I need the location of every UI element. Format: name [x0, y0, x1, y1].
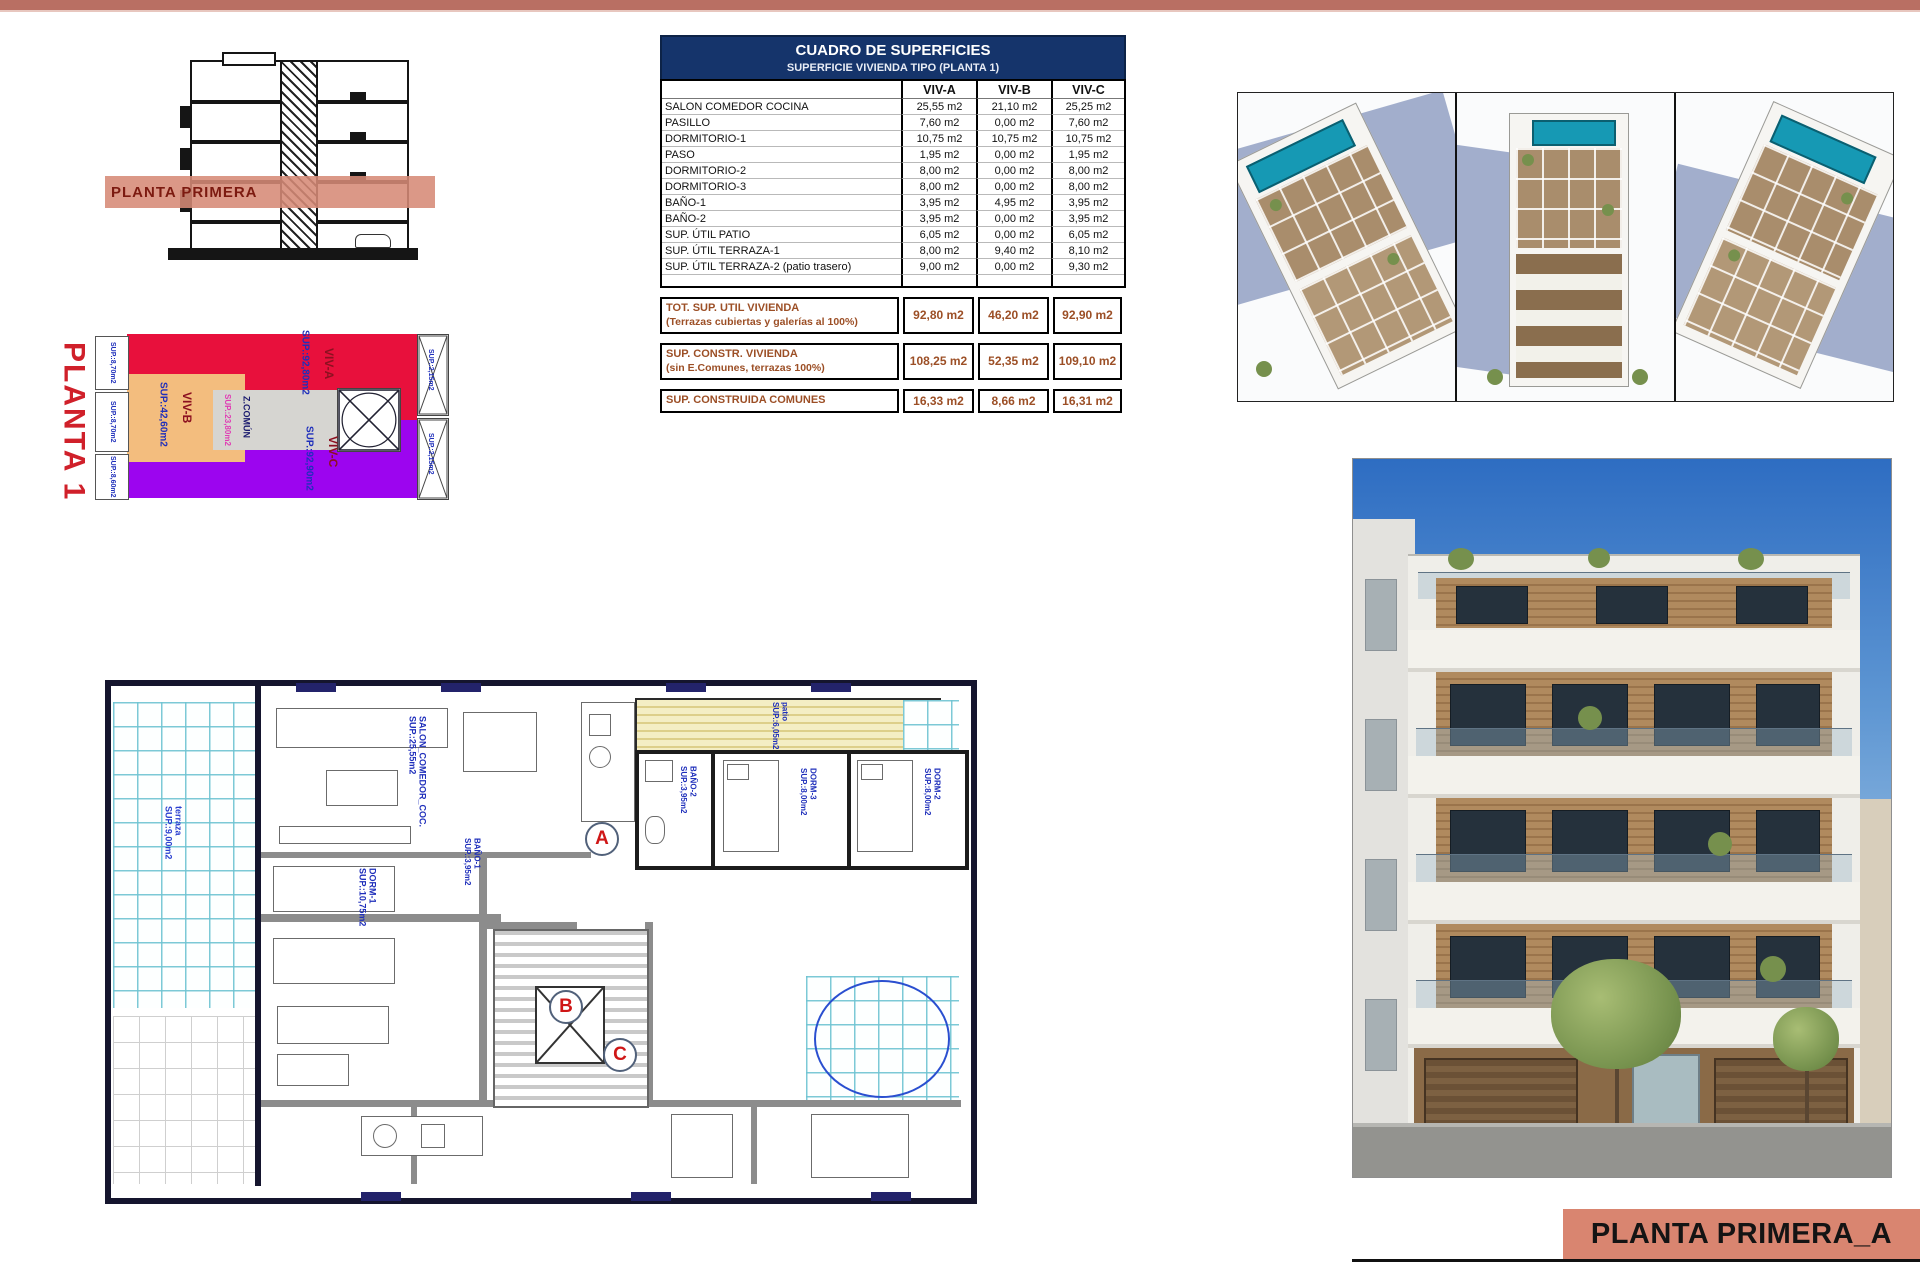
viv-c-sup-label: SUP.:92,90m2 [303, 426, 315, 498]
surface-table-header: CUADRO DE SUPERFICIES SUPERFICIE VIVIEND… [660, 35, 1126, 79]
unit-marker-a: A [585, 822, 619, 856]
bed [811, 1114, 909, 1178]
summary-value: 46,20 m2 [978, 297, 1049, 334]
wardrobe [671, 1114, 733, 1178]
planta-primera-band: PLANTA PRIMERA [105, 176, 435, 208]
window-marker [666, 683, 706, 692]
viv-a-label: VIV-A [321, 348, 335, 408]
viv-c-label: VIV-C [325, 436, 339, 494]
row-value: 8,00 m2 [901, 243, 976, 259]
roof-plant [1738, 548, 1764, 570]
spacer [976, 275, 1051, 286]
sofa [277, 1006, 389, 1044]
plant [1522, 154, 1534, 166]
summary-row-total-util: TOT. SUP. UTIL VIVIENDA (Terrazas cubier… [660, 297, 1126, 334]
summary-label-sub: (Terrazas cubiertas y galerías al 100%) [666, 316, 893, 329]
row-label: SUP. ÚTIL TERRAZA-1 [662, 243, 901, 259]
neighbour-window [1365, 999, 1397, 1071]
balcony-railing [1416, 854, 1852, 883]
table-row: SUP. ÚTIL TERRAZA-2 (patio trasero) 9,00… [662, 259, 1124, 275]
summary-value: 108,25 m2 [903, 343, 974, 380]
balcony-block [180, 106, 192, 128]
title-underline [1352, 1259, 1920, 1262]
terrace-tiled-left [113, 702, 255, 1008]
wall-segment [261, 914, 501, 922]
unit-marker-b: B [549, 990, 583, 1024]
room-label-dorm2: DORM-2SUP.:8,00m2 [923, 768, 941, 848]
terrace-tab-label: SUP.:8,70m2 [108, 342, 116, 384]
row-value: 3,95 m2 [901, 211, 976, 227]
floor-plan: terrazaSUP.:9,00m2 SALON_COMEDOR_COC.SUP… [105, 680, 977, 1204]
room-label-bano2: BAÑO-2SUP.:3,95m2 [679, 766, 697, 846]
table-row: SUP. ÚTIL PATIO 6,05 m2 0,00 m2 6,05 m2 [662, 227, 1124, 243]
shaft-right-bottom: SUP.:2,15m2 [417, 418, 449, 500]
row-label: SUP. ÚTIL TERRAZA-2 (patio trasero) [662, 259, 901, 275]
balcony-plant [1578, 706, 1602, 730]
street-tree [1773, 1007, 1839, 1071]
terrace-tab-label: SUP.:8,70m2 [108, 401, 116, 443]
toilet [645, 816, 665, 844]
neighbour-window [1365, 859, 1397, 931]
key-plan-title: PLANTA 1 [56, 342, 91, 512]
row-value: 7,60 m2 [901, 115, 976, 131]
surface-table-grid: VIV-A VIV-B VIV-C SALON COMEDOR COCINA 2… [660, 79, 1126, 288]
planta-primera-band-label: PLANTA PRIMERA [105, 184, 258, 201]
summary-row-comunes: SUP. CONSTRUIDA COMUNES 16,33 m2 8,66 m2… [660, 389, 1126, 413]
row-value: 6,05 m2 [901, 227, 976, 243]
window-block [350, 132, 366, 144]
window-marker [441, 683, 481, 692]
wall-segment [487, 922, 577, 929]
building-model [1509, 113, 1629, 387]
terrace-label: terrazaSUP.:9,00m2 [163, 806, 184, 896]
car-glyph [355, 234, 391, 248]
shaft-label: SUP.:2,15m2 [426, 349, 434, 391]
balcony-block [180, 148, 192, 170]
table-row: DORMITORIO-2 8,00 m2 0,00 m2 8,00 m2 [662, 163, 1124, 179]
row-label: SALON COMEDOR COCINA [662, 99, 901, 115]
row-value: 4,95 m2 [976, 195, 1051, 211]
terrace-tab: SUP.:8,70m2 [95, 392, 129, 452]
street-tree [1632, 369, 1648, 385]
row-value: 0,00 m2 [976, 147, 1051, 163]
row-value: 8,00 m2 [901, 179, 976, 195]
window-marker [361, 1192, 401, 1201]
table-spacer-row [662, 275, 1124, 286]
row-value: 9,30 m2 [1051, 259, 1124, 275]
neighbour-window [1365, 579, 1397, 651]
table-row: BAÑO-1 3,95 m2 4,95 m2 3,95 m2 [662, 195, 1124, 211]
row-value: 8,10 m2 [1051, 243, 1124, 259]
table-column-header-row: VIV-A VIV-B VIV-C [662, 81, 1124, 99]
patio-circle [814, 980, 950, 1098]
window-marker [631, 1192, 671, 1201]
spacer [662, 275, 901, 286]
wall-segment [751, 1107, 757, 1184]
surface-table-title: CUADRO DE SUPERFICIES [662, 37, 1124, 62]
row-label: BAÑO-2 [662, 211, 901, 227]
window-marker [296, 683, 336, 692]
row-value: 8,00 m2 [901, 163, 976, 179]
aerial-renders-strip [1237, 92, 1894, 402]
penthouse-band [1436, 578, 1832, 628]
summary-value: 52,35 m2 [978, 343, 1049, 380]
garage-door-right [1714, 1058, 1848, 1130]
spacer [1051, 275, 1124, 286]
summary-row-constr: SUP. CONSTR. VIVIENDA (sin E.Comunes, te… [660, 343, 1126, 380]
neighbour-window [1365, 719, 1397, 791]
summary-label: TOT. SUP. UTIL VIVIENDA (Terrazas cubier… [660, 297, 899, 334]
dining-table [463, 712, 537, 772]
table-row: BAÑO-2 3,95 m2 0,00 m2 3,95 m2 [662, 211, 1124, 227]
row-value: 21,10 m2 [976, 99, 1051, 115]
sink [589, 714, 611, 736]
row-value: 25,25 m2 [1051, 99, 1124, 115]
patio-label: patioSUP.:6,05m2 [771, 702, 789, 746]
balcony-plant [1708, 832, 1732, 856]
summary-value: 92,90 m2 [1053, 297, 1122, 334]
summary-label-main: SUP. CONSTRUIDA COMUNES [666, 394, 826, 408]
stair-core [280, 62, 318, 252]
row-value: 8,00 m2 [1051, 163, 1124, 179]
coffee-table [326, 770, 398, 806]
summary-label: SUP. CONSTRUIDA COMUNES [660, 389, 899, 413]
surface-table-subtitle: SUPERFICIE VIVIENDA TIPO (PLANTA 1) [662, 62, 1124, 79]
summary-value: 92,80 m2 [903, 297, 974, 334]
shaft-right-top: SUP.:2,15m2 [417, 334, 449, 416]
room-label-dorm1: DORM-1SUP.:10,75m2 [357, 868, 378, 978]
wall-segment [255, 686, 261, 1186]
plant [1602, 204, 1614, 216]
row-value: 6,05 m2 [1051, 227, 1124, 243]
window-marker [811, 683, 851, 692]
table-row: DORMITORIO-1 10,75 m2 10,75 m2 10,75 m2 [662, 131, 1124, 147]
terrace-tiled-corner [903, 700, 959, 750]
terrace-tab: SUP.:8,60m2 [95, 454, 129, 500]
comun-sup-label: SUP.:23,80m2 [223, 394, 232, 448]
comun-label: Z.COMÚN [241, 396, 251, 446]
ground-slab [168, 248, 418, 260]
row-value: 0,00 m2 [976, 163, 1051, 179]
plan-sheet: PLANTA PRIMERA PLANTA 1 SUP.:8,70m2 SUP.… [0, 0, 1920, 1280]
table [277, 1054, 349, 1086]
window-block [350, 92, 366, 104]
summary-label-sub: (sin E.Comunes, terrazas 100%) [666, 362, 893, 375]
facade-floors [1516, 254, 1622, 378]
row-value: 0,00 m2 [976, 259, 1051, 275]
table-row: PASILLO 7,60 m2 0,00 m2 7,60 m2 [662, 115, 1124, 131]
row-value: 10,75 m2 [1051, 131, 1124, 147]
washbasin [645, 760, 673, 782]
room-label-bano1: BAÑO-1SUP.:3,95m2 [463, 838, 481, 913]
street-tree [1551, 959, 1681, 1069]
table-row: SALON COMEDOR COCINA 25,55 m2 21,10 m2 2… [662, 99, 1124, 115]
summary-value: 16,31 m2 [1053, 389, 1122, 413]
roof-plant [1448, 548, 1474, 570]
row-label: PASO [662, 147, 901, 163]
row-value: 9,00 m2 [901, 259, 976, 275]
street-tree [1256, 361, 1272, 377]
sheet-title: PLANTA PRIMERA_A [1591, 1218, 1892, 1251]
tree-trunk [1805, 1069, 1809, 1125]
room-label-dorm3: DORM-3SUP.:8,00m2 [799, 768, 817, 848]
row-label: DORMITORIO-3 [662, 179, 901, 195]
sheet-title-bar: PLANTA PRIMERA_A [1563, 1209, 1920, 1259]
row-label: BAÑO-1 [662, 195, 901, 211]
row-value: 3,95 m2 [901, 195, 976, 211]
row-value: 3,95 m2 [1051, 195, 1124, 211]
elevator-shaft [337, 388, 401, 452]
rooftop-pool [1532, 120, 1616, 146]
row-label: SUP. ÚTIL PATIO [662, 227, 901, 243]
summary-value: 16,33 m2 [903, 389, 974, 413]
row-value: 10,75 m2 [976, 131, 1051, 147]
row-value: 25,55 m2 [901, 99, 976, 115]
row-value: 0,00 m2 [976, 211, 1051, 227]
neighbour-building [1353, 519, 1415, 1177]
row-value: 0,00 m2 [976, 179, 1051, 195]
row-value: 7,60 m2 [1051, 115, 1124, 131]
column-header: VIV-B [976, 81, 1051, 99]
row-value: 10,75 m2 [901, 131, 976, 147]
pillow [861, 764, 883, 780]
building-section-drawing: PLANTA PRIMERA [150, 48, 450, 288]
row-value: 0,00 m2 [976, 227, 1051, 243]
terrace-tab-label: SUP.:8,60m2 [108, 456, 116, 498]
summary-label-main: SUP. CONSTR. VIVIENDA [666, 348, 893, 362]
side-wall [1858, 799, 1891, 1177]
hob [421, 1124, 445, 1148]
column-header-empty [662, 81, 901, 99]
floor-slab [1408, 630, 1860, 672]
terrace-white-left [113, 1016, 255, 1184]
spacer [901, 275, 976, 286]
garage-door-left [1424, 1058, 1578, 1130]
summary-label: SUP. CONSTR. VIVIENDA (sin E.Comunes, te… [660, 343, 899, 380]
room-label-salon: SALON_COMEDOR_COC.SUP.:25,55m2 [407, 716, 428, 851]
balcony-plant [1760, 956, 1786, 982]
row-value: 9,40 m2 [976, 243, 1051, 259]
sink [373, 1124, 397, 1148]
window-marker [871, 1192, 911, 1201]
row-label: DORMITORIO-1 [662, 131, 901, 147]
summary-value: 8,66 m2 [978, 389, 1049, 413]
floor-slab [1408, 756, 1860, 798]
wall-segment [261, 852, 591, 858]
summary-value: 109,10 m2 [1053, 343, 1122, 380]
hob [589, 746, 611, 768]
row-label: PASILLO [662, 115, 901, 131]
shaft-label: SUP.:2,15m2 [426, 433, 434, 475]
unit-marker-c: C [603, 1038, 637, 1072]
row-value: 8,00 m2 [1051, 179, 1124, 195]
row-label: DORMITORIO-2 [662, 163, 901, 179]
terrace-tab: SUP.:8,70m2 [95, 336, 129, 390]
aerial-render-3 [1674, 93, 1893, 401]
top-accent-bar [0, 0, 1920, 12]
street [1353, 1123, 1891, 1178]
sideboard [279, 826, 411, 844]
entrance-door [1632, 1054, 1700, 1130]
row-value: 0,00 m2 [976, 115, 1051, 131]
column-header: VIV-A [901, 81, 976, 99]
viv-b-label: VIV-B [179, 392, 193, 450]
summary-label-main: TOT. SUP. UTIL VIVIENDA [666, 302, 893, 316]
row-value: 1,95 m2 [1051, 147, 1124, 163]
table-row: PASO 1,95 m2 0,00 m2 1,95 m2 [662, 147, 1124, 163]
viv-b-sup-label: SUP.:42,60m2 [157, 382, 169, 460]
pillow [727, 764, 749, 780]
aerial-render-2 [1455, 93, 1674, 401]
street-tree [1487, 369, 1503, 385]
balcony-railing [1416, 728, 1852, 757]
aerial-render-1 [1238, 93, 1455, 401]
facade-render [1352, 458, 1892, 1178]
key-plan: SUP.:8,70m2 SUP.:8,70m2 SUP.:8,60m2 SUP.… [95, 330, 447, 502]
table-row: DORMITORIO-3 8,00 m2 0,00 m2 8,00 m2 [662, 179, 1124, 195]
floor-slab [1408, 882, 1860, 924]
column-header: VIV-C [1051, 81, 1124, 99]
section-outline [190, 60, 409, 254]
row-value: 1,95 m2 [901, 147, 976, 163]
table-row: SUP. ÚTIL TERRAZA-1 8,00 m2 9,40 m2 8,10… [662, 243, 1124, 259]
row-value: 3,95 m2 [1051, 211, 1124, 227]
roof-structure [222, 52, 276, 66]
surface-table: CUADRO DE SUPERFICIES SUPERFICIE VIVIEND… [660, 35, 1126, 413]
roof-plant [1588, 548, 1610, 568]
